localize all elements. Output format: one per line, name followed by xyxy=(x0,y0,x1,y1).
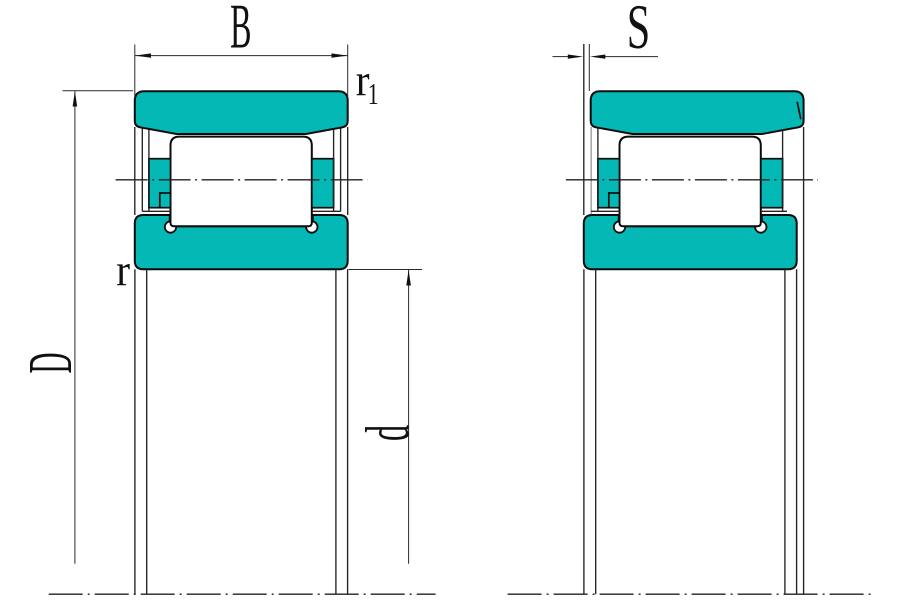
svg-text:B: B xyxy=(230,0,251,61)
svg-text:D: D xyxy=(17,352,85,373)
svg-text:S: S xyxy=(627,0,650,62)
svg-text:1: 1 xyxy=(368,76,379,111)
svg-text:d: d xyxy=(353,425,422,441)
svg-text:r: r xyxy=(116,246,130,296)
